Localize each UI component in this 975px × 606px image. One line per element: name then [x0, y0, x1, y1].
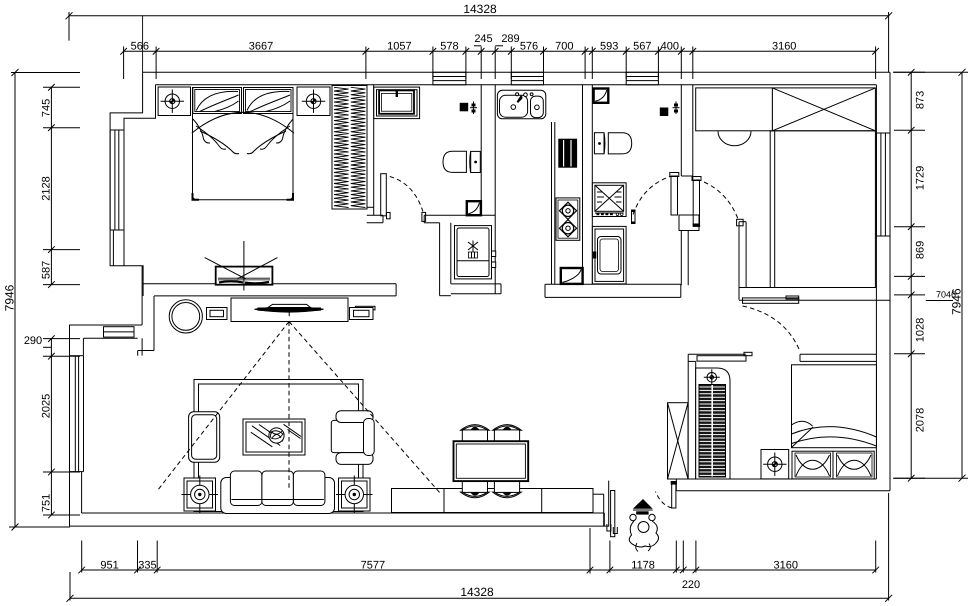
svg-text:567: 567 — [633, 40, 651, 52]
svg-text:289: 289 — [501, 33, 519, 45]
svg-text:2128: 2128 — [41, 176, 53, 200]
svg-text:869: 869 — [915, 241, 927, 259]
svg-text:1028: 1028 — [915, 318, 927, 342]
svg-text:745: 745 — [41, 99, 53, 117]
svg-text:751: 751 — [41, 494, 53, 512]
svg-text:593: 593 — [600, 40, 618, 52]
svg-text:7577: 7577 — [361, 560, 385, 572]
svg-text:335: 335 — [138, 560, 156, 572]
svg-text:3160: 3160 — [774, 560, 798, 572]
svg-text:220: 220 — [682, 579, 700, 591]
svg-text:566: 566 — [131, 40, 149, 52]
svg-text:2078: 2078 — [915, 408, 927, 432]
svg-text:400: 400 — [661, 40, 679, 52]
svg-text:3160: 3160 — [772, 40, 796, 52]
svg-text:14328: 14328 — [460, 585, 494, 599]
svg-text:3667: 3667 — [249, 40, 273, 52]
svg-text:700: 700 — [555, 40, 573, 52]
svg-text:587: 587 — [41, 261, 53, 279]
svg-text:1178: 1178 — [631, 560, 655, 572]
svg-text:245: 245 — [474, 33, 492, 45]
svg-text:14328: 14328 — [463, 2, 497, 16]
svg-text:951: 951 — [100, 560, 118, 572]
svg-text:1057: 1057 — [387, 40, 411, 52]
svg-text:578: 578 — [440, 40, 458, 52]
svg-text:7946: 7946 — [950, 288, 964, 315]
svg-text:1729: 1729 — [915, 166, 927, 190]
svg-text:2025: 2025 — [41, 394, 53, 418]
svg-text:576: 576 — [520, 41, 538, 53]
svg-text:873: 873 — [915, 91, 927, 109]
svg-text:7946: 7946 — [3, 284, 17, 311]
svg-text:290: 290 — [24, 335, 42, 347]
